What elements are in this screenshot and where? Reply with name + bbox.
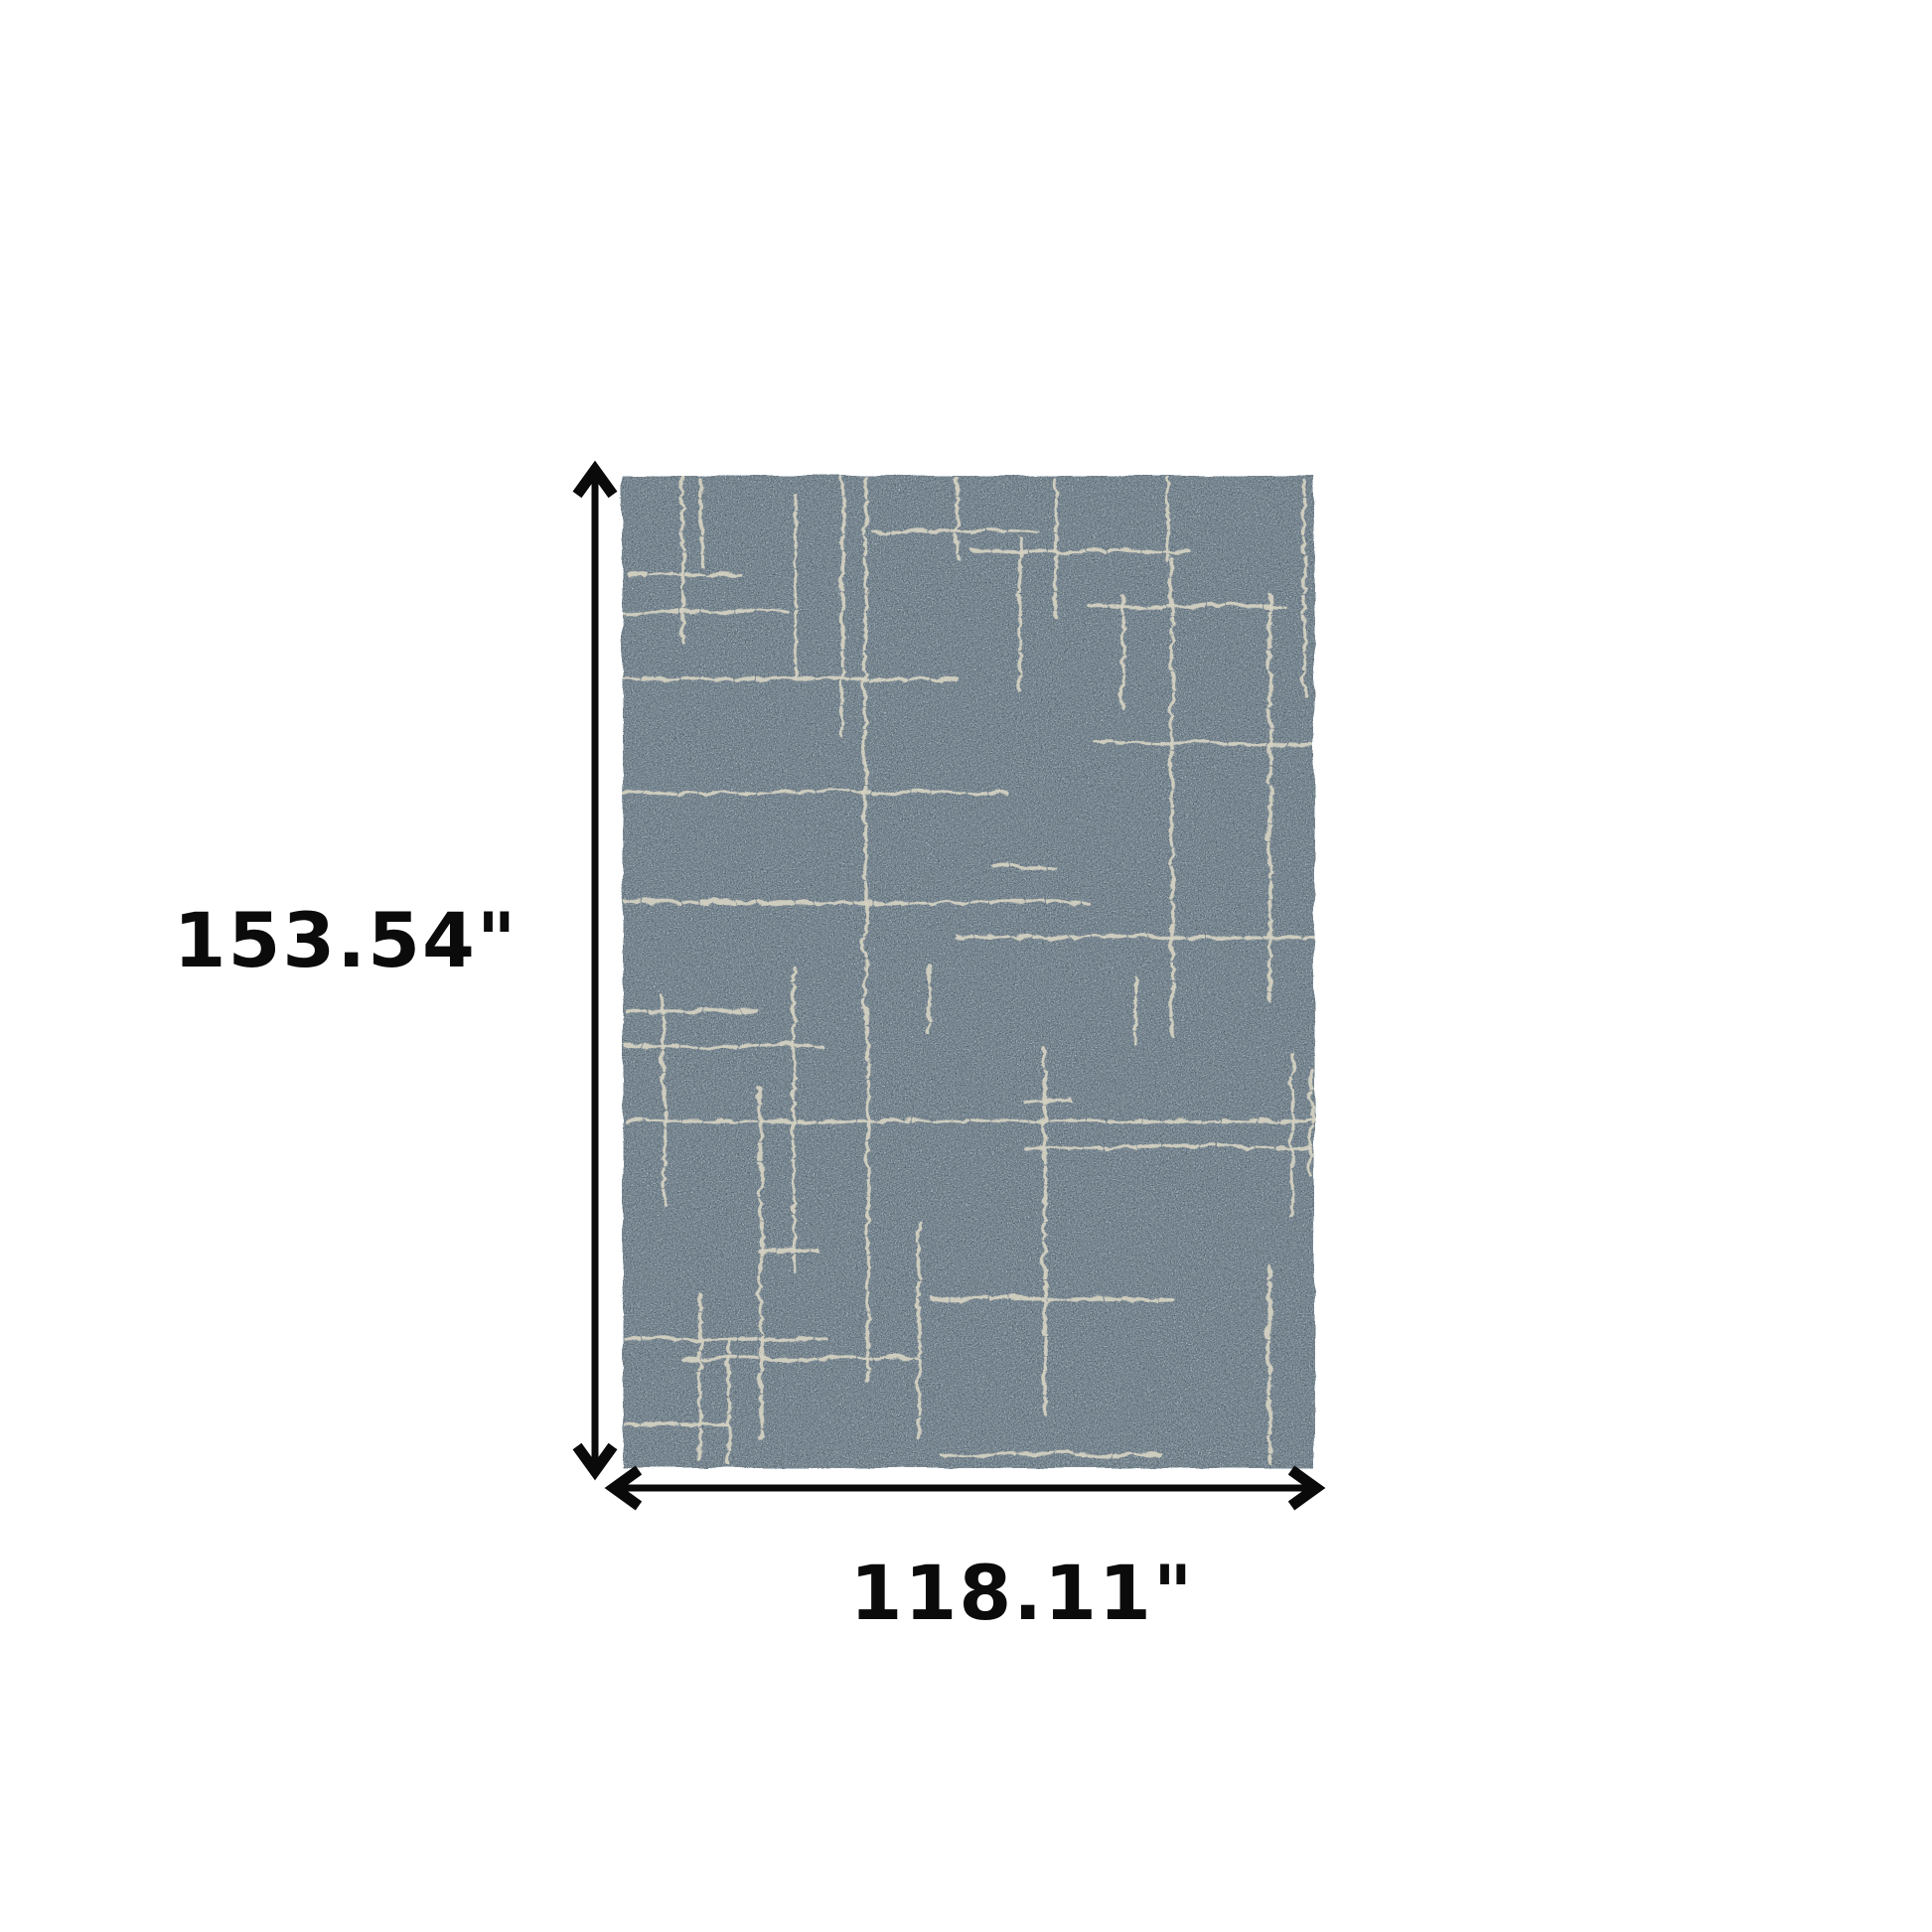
rug-image [621,474,1313,1466]
height-dimension-arrow [577,470,613,1471]
width-dimension-label: 118.11" [804,1548,1241,1638]
product-dimension-image: 153.54" 118.11" [0,0,1932,1932]
width-dimension-arrow [614,1470,1316,1506]
height-dimension-label: 153.54" [127,895,564,985]
rug-texture-dark [621,474,1313,1466]
